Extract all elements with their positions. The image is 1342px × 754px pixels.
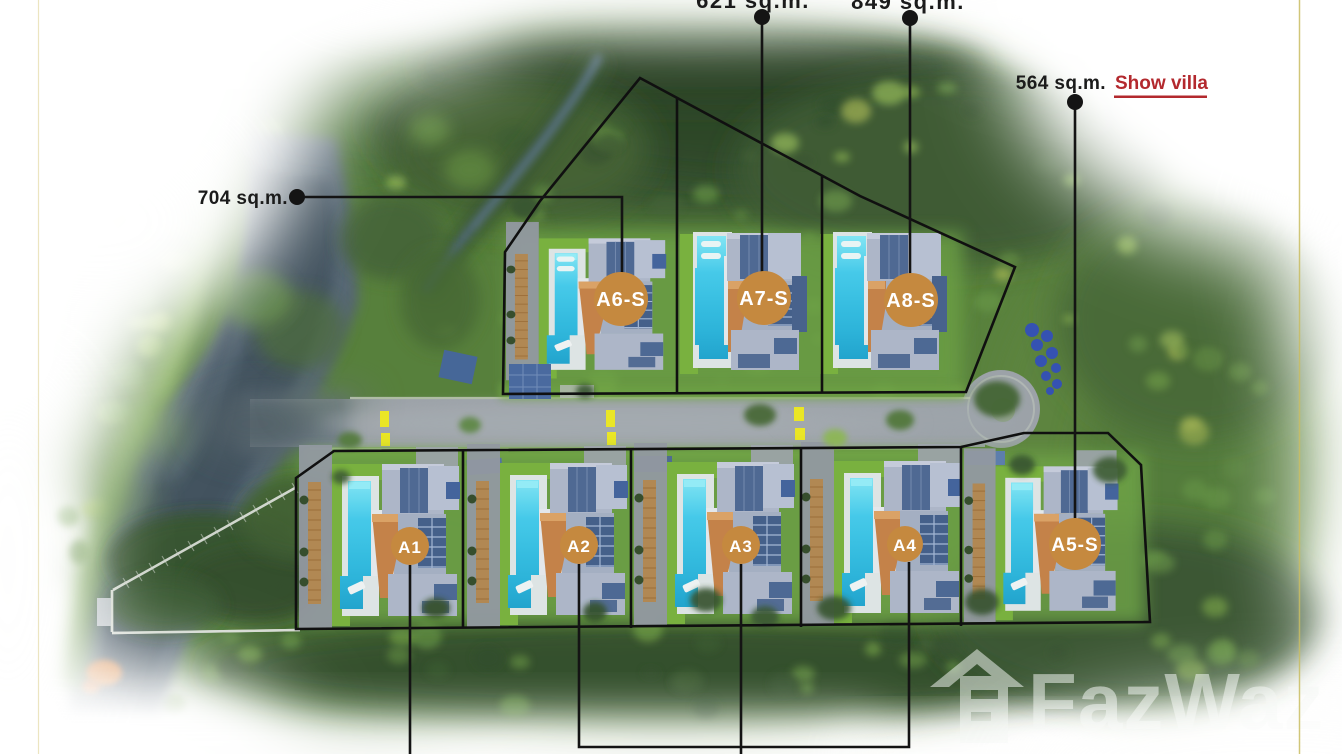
svg-text:A1: A1 [398, 538, 422, 557]
svg-text:849 sq.m.: 849 sq.m. [851, 0, 965, 14]
svg-text:A2: A2 [567, 537, 591, 556]
svg-text:A8-S: A8-S [886, 290, 936, 312]
svg-text:564 sq.m.: 564 sq.m. [1016, 73, 1106, 94]
svg-text:A3: A3 [729, 537, 753, 556]
svg-text:Show villa: Show villa [1115, 73, 1208, 94]
svg-text:704 sq.m.: 704 sq.m. [198, 188, 288, 209]
svg-text:A6-S: A6-S [596, 289, 646, 311]
svg-text:A5-S: A5-S [1051, 535, 1098, 556]
svg-text:A4: A4 [893, 536, 917, 555]
svg-text:A7-S: A7-S [739, 288, 789, 310]
svg-text:621 sq.m.: 621 sq.m. [696, 0, 810, 13]
